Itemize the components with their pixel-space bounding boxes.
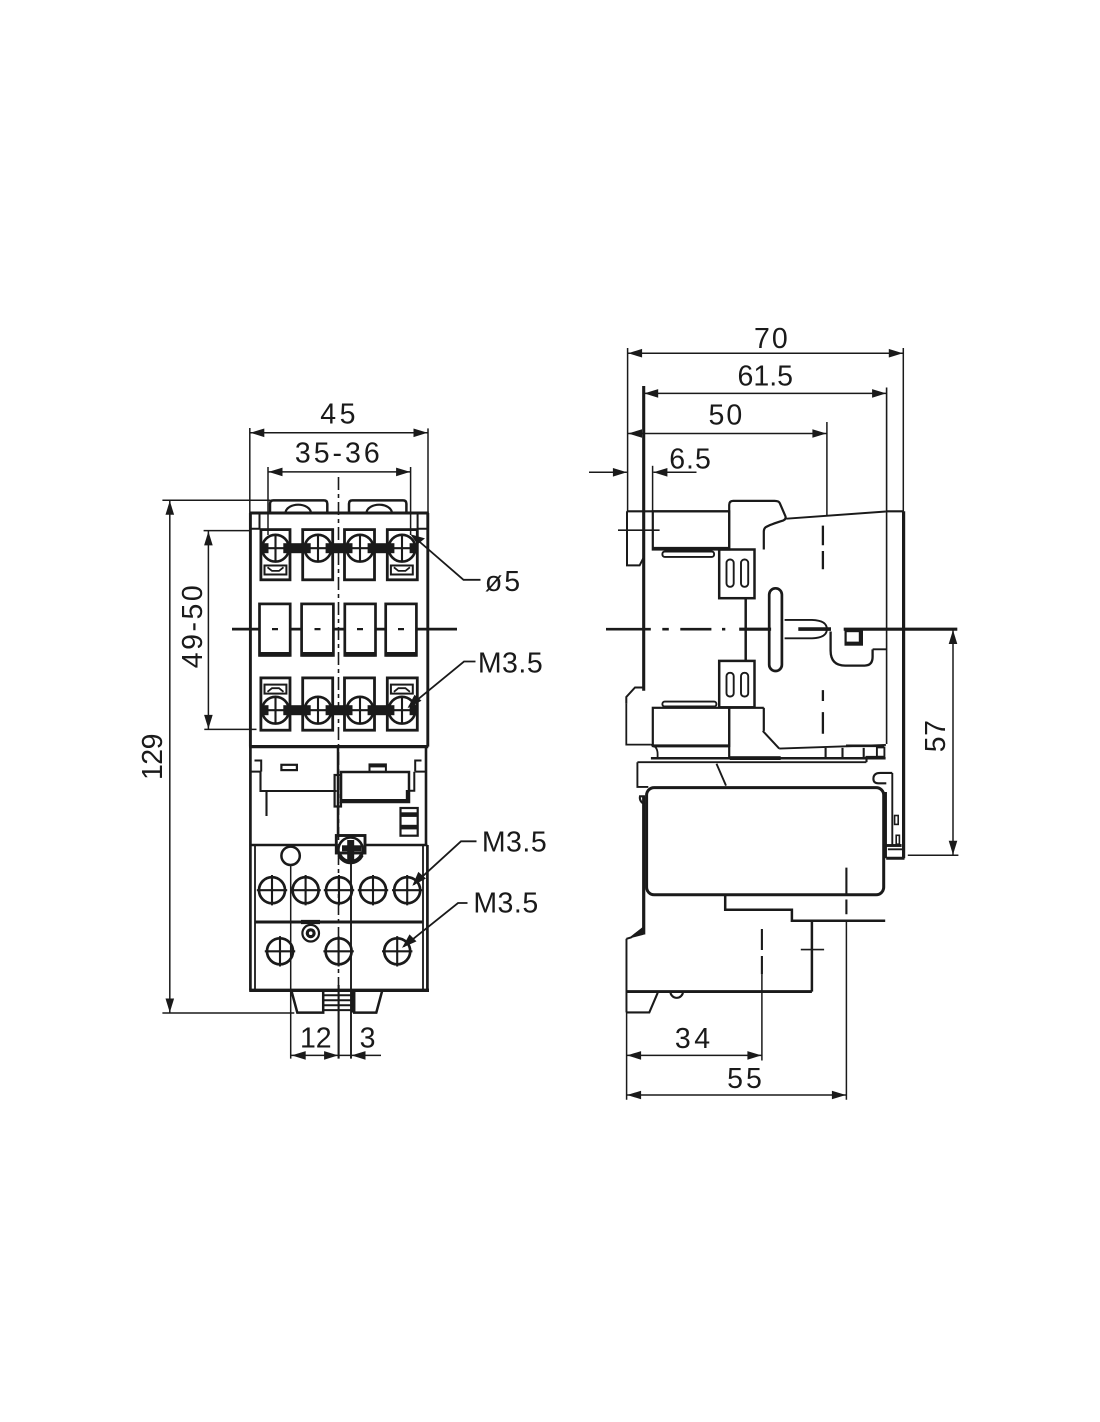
svg-text:49-50: 49-50 <box>177 583 209 668</box>
svg-text:50: 50 <box>709 399 745 431</box>
svg-text:3: 3 <box>360 1023 377 1055</box>
svg-text:M3.5: M3.5 <box>478 648 543 680</box>
svg-text:34: 34 <box>675 1023 714 1055</box>
svg-text:129: 129 <box>137 734 169 780</box>
svg-text:ø5: ø5 <box>485 566 522 598</box>
svg-text:57: 57 <box>920 720 952 753</box>
svg-text:35-36: 35-36 <box>295 438 383 470</box>
svg-text:61.5: 61.5 <box>738 361 793 393</box>
svg-text:M3.5: M3.5 <box>482 827 547 859</box>
svg-text:55: 55 <box>727 1063 765 1095</box>
svg-text:70: 70 <box>754 323 790 355</box>
svg-text:M3.5: M3.5 <box>473 888 538 920</box>
svg-text:12: 12 <box>300 1023 332 1055</box>
svg-text:6.5: 6.5 <box>669 443 712 475</box>
svg-text:45: 45 <box>320 399 359 431</box>
